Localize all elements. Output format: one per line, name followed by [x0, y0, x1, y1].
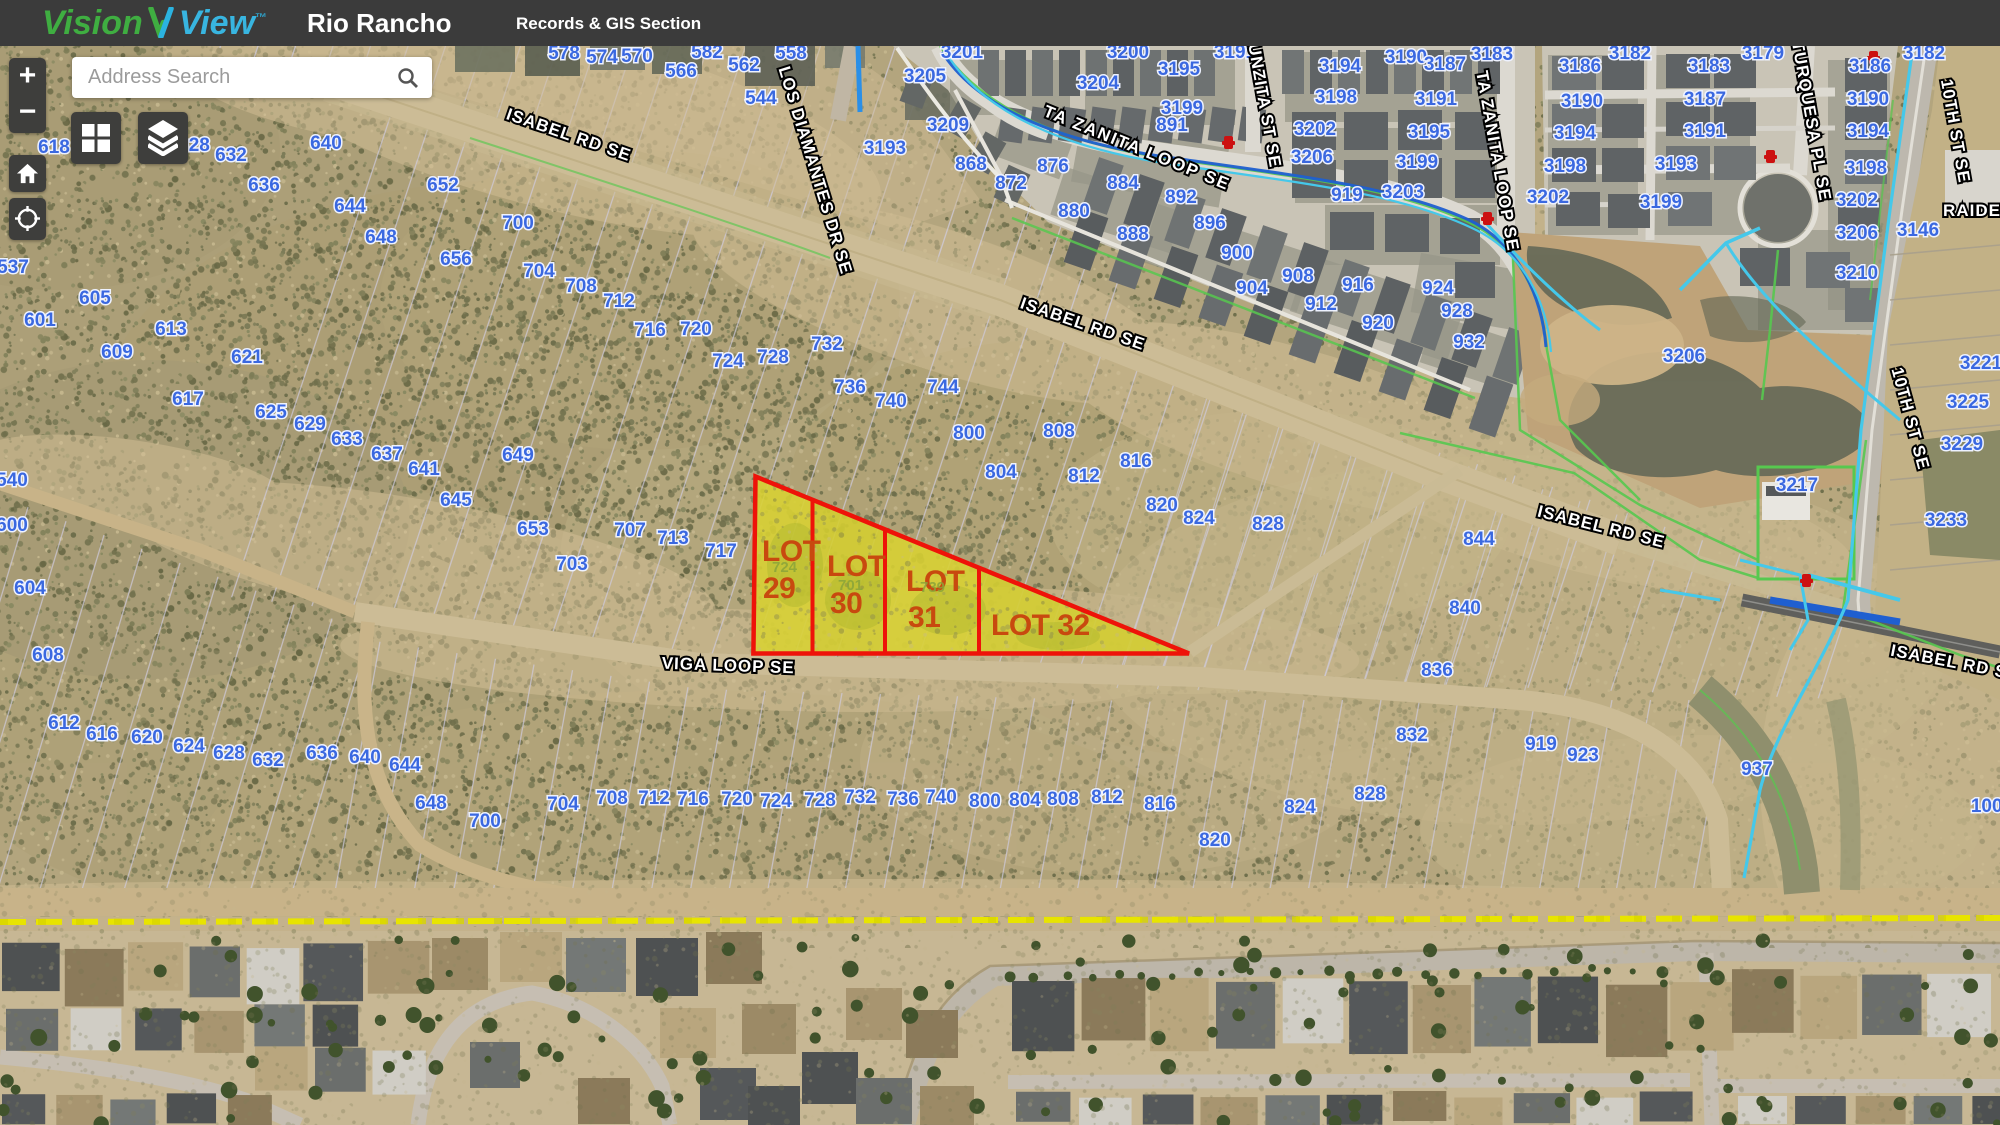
svg-text:707: 707: [614, 520, 646, 541]
svg-text:716: 716: [634, 320, 666, 341]
svg-text:3190: 3190: [1561, 91, 1603, 112]
svg-text:872: 872: [995, 173, 1027, 194]
svg-text:712: 712: [603, 291, 635, 312]
svg-text:3187: 3187: [1424, 54, 1466, 75]
svg-text:3146: 3146: [1897, 220, 1939, 241]
svg-text:800: 800: [969, 791, 1001, 812]
svg-text:3195: 3195: [1158, 59, 1201, 80]
svg-text:637: 637: [371, 444, 403, 465]
svg-text:724: 724: [712, 351, 744, 372]
svg-text:624: 624: [173, 736, 205, 757]
svg-text:923: 923: [1567, 745, 1599, 766]
svg-text:625: 625: [255, 402, 287, 423]
svg-text:3193: 3193: [1655, 154, 1697, 175]
svg-text:1001: 1001: [1971, 796, 2000, 817]
svg-text:832: 832: [1396, 725, 1428, 746]
svg-text:840: 840: [1449, 598, 1481, 619]
svg-text:3187: 3187: [1684, 89, 1726, 110]
svg-text:652: 652: [427, 175, 459, 196]
svg-text:812: 812: [1091, 787, 1123, 808]
svg-text:3194: 3194: [1847, 121, 1890, 142]
svg-text:613: 613: [155, 319, 187, 340]
svg-text:740: 740: [875, 391, 907, 412]
svg-text:3229: 3229: [1941, 434, 1983, 455]
svg-text:932: 932: [1453, 332, 1485, 353]
svg-text:900: 900: [1221, 243, 1253, 264]
svg-text:828: 828: [1354, 784, 1386, 805]
svg-text:704: 704: [523, 261, 555, 282]
svg-text:608: 608: [32, 645, 64, 666]
svg-text:3209: 3209: [927, 115, 969, 136]
svg-text:937: 937: [1741, 759, 1773, 780]
svg-text:617: 617: [172, 389, 204, 410]
svg-text:739: 739: [920, 579, 945, 596]
svg-text:537: 537: [0, 257, 29, 278]
svg-text:3198: 3198: [1845, 158, 1887, 179]
svg-text:713: 713: [657, 528, 689, 549]
svg-text:3202: 3202: [1527, 187, 1569, 208]
svg-text:824: 824: [1284, 797, 1316, 818]
svg-text:732: 732: [811, 334, 843, 355]
svg-text:800: 800: [953, 423, 985, 444]
svg-text:578: 578: [548, 43, 580, 64]
svg-text:3191: 3191: [1415, 89, 1458, 110]
svg-text:629: 629: [294, 414, 326, 435]
svg-text:3221: 3221: [1960, 353, 2000, 374]
svg-text:716: 716: [677, 789, 709, 810]
svg-text:3190: 3190: [1847, 89, 1889, 110]
svg-text:717: 717: [705, 541, 737, 562]
svg-text:3183: 3183: [1688, 56, 1730, 77]
svg-text:544: 544: [745, 88, 777, 109]
svg-text:3198: 3198: [1544, 156, 1586, 177]
svg-text:724: 724: [760, 791, 792, 812]
svg-text:3198: 3198: [1315, 87, 1357, 108]
svg-text:728: 728: [804, 790, 836, 811]
svg-text:653: 653: [517, 519, 549, 540]
svg-text:804: 804: [1009, 790, 1041, 811]
svg-text:892: 892: [1165, 187, 1197, 208]
svg-text:816: 816: [1144, 794, 1176, 815]
svg-text:884: 884: [1107, 173, 1139, 194]
svg-text:644: 644: [334, 196, 366, 217]
svg-text:562: 562: [728, 55, 760, 76]
svg-text:712: 712: [638, 788, 670, 809]
svg-text:LOT 32: LOT 32: [991, 609, 1090, 642]
svg-text:844: 844: [1463, 529, 1495, 550]
svg-text:3217: 3217: [1776, 475, 1818, 496]
svg-text:724: 724: [772, 559, 798, 576]
svg-text:3186: 3186: [1849, 56, 1891, 77]
svg-text:656: 656: [440, 249, 472, 270]
svg-text:700: 700: [502, 213, 534, 234]
svg-text:601: 601: [24, 310, 56, 331]
svg-text:820: 820: [1146, 495, 1178, 516]
svg-text:732: 732: [844, 787, 876, 808]
svg-text:736: 736: [834, 377, 866, 398]
svg-text:640: 640: [310, 133, 342, 154]
svg-text:621: 621: [231, 347, 263, 368]
svg-text:816: 816: [1120, 451, 1152, 472]
svg-text:632: 632: [252, 750, 284, 771]
svg-text:616: 616: [86, 724, 118, 745]
svg-text:728: 728: [757, 347, 789, 368]
svg-text:3193: 3193: [864, 138, 906, 159]
svg-text:740: 740: [925, 787, 957, 808]
svg-text:904: 904: [1236, 278, 1268, 299]
svg-text:868: 868: [955, 154, 987, 175]
svg-text:640: 640: [349, 747, 381, 768]
svg-text:612: 612: [48, 713, 80, 734]
svg-text:3191: 3191: [1684, 121, 1727, 142]
svg-text:828: 828: [1252, 514, 1284, 535]
svg-text:604: 604: [14, 578, 46, 599]
svg-text:540: 540: [0, 470, 28, 491]
svg-text:3182: 3182: [1609, 43, 1651, 64]
svg-text:920: 920: [1362, 313, 1394, 334]
svg-text:644: 644: [389, 755, 421, 776]
svg-text:708: 708: [565, 276, 597, 297]
svg-text:804: 804: [985, 462, 1017, 483]
svg-text:812: 812: [1068, 466, 1100, 487]
svg-text:633: 633: [331, 429, 363, 450]
svg-text:609: 609: [101, 342, 133, 363]
svg-text:3199: 3199: [1640, 192, 1682, 213]
svg-text:808: 808: [1047, 789, 1079, 810]
svg-text:3233: 3233: [1925, 510, 1967, 531]
svg-text:3206: 3206: [1663, 346, 1705, 367]
svg-text:3206: 3206: [1291, 147, 1333, 168]
svg-text:908: 908: [1282, 266, 1314, 287]
svg-text:620: 620: [131, 727, 163, 748]
svg-text:924: 924: [1422, 278, 1454, 299]
svg-text:928: 928: [1441, 301, 1473, 322]
svg-text:808: 808: [1043, 421, 1075, 442]
svg-text:876: 876: [1037, 156, 1069, 177]
svg-text:3179: 3179: [1742, 43, 1784, 64]
svg-text:3202: 3202: [1836, 190, 1878, 211]
svg-text:3210: 3210: [1836, 263, 1878, 284]
svg-text:3183: 3183: [1471, 44, 1513, 65]
svg-text:912: 912: [1305, 294, 1337, 315]
svg-text:636: 636: [248, 175, 280, 196]
svg-text:720: 720: [721, 789, 753, 810]
svg-text:649: 649: [502, 445, 534, 466]
svg-text:919: 919: [1331, 185, 1363, 206]
svg-text:880: 880: [1058, 201, 1090, 222]
svg-text:744: 744: [927, 377, 959, 398]
svg-text:3194: 3194: [1554, 123, 1597, 144]
svg-text:648: 648: [365, 227, 397, 248]
svg-text:3199: 3199: [1396, 152, 1438, 173]
svg-text:574: 574: [586, 47, 618, 68]
svg-text:3190: 3190: [1385, 47, 1427, 68]
svg-text:3203: 3203: [1382, 182, 1424, 203]
svg-text:645: 645: [440, 490, 472, 511]
svg-text:704: 704: [547, 794, 579, 815]
svg-text:648: 648: [415, 793, 447, 814]
svg-text:836: 836: [1421, 660, 1453, 681]
svg-text:896: 896: [1194, 213, 1226, 234]
svg-text:3225: 3225: [1947, 392, 1990, 413]
svg-text:RAIDE: RAIDE: [1943, 201, 2000, 220]
svg-text:3182: 3182: [1903, 43, 1945, 64]
svg-text:566: 566: [665, 61, 697, 82]
svg-text:636: 636: [306, 743, 338, 764]
svg-text:558: 558: [775, 43, 807, 64]
svg-text:3204: 3204: [1077, 73, 1120, 94]
svg-text:3205: 3205: [904, 66, 947, 87]
svg-text:703: 703: [556, 554, 588, 575]
svg-text:824: 824: [1183, 508, 1215, 529]
svg-text:919: 919: [1525, 734, 1557, 755]
svg-text:3206: 3206: [1836, 223, 1878, 244]
svg-text:605: 605: [79, 288, 111, 309]
svg-text:700: 700: [469, 811, 501, 832]
svg-text:3194: 3194: [1319, 56, 1362, 77]
svg-text:3202: 3202: [1294, 119, 1336, 140]
svg-text:720: 720: [680, 319, 712, 340]
svg-text:891: 891: [1156, 115, 1188, 136]
svg-text:29: 29: [763, 572, 795, 605]
svg-text:632: 632: [215, 145, 247, 166]
svg-text:600: 600: [0, 515, 28, 536]
svg-text:641: 641: [408, 459, 440, 480]
svg-text:628: 628: [213, 743, 245, 764]
svg-text:31: 31: [908, 601, 940, 634]
svg-text:3186: 3186: [1559, 56, 1601, 77]
svg-text:570: 570: [621, 46, 653, 67]
svg-text:708: 708: [596, 788, 628, 809]
svg-text:3195: 3195: [1408, 122, 1451, 143]
svg-text:820: 820: [1199, 830, 1231, 851]
svg-text:916: 916: [1342, 275, 1374, 296]
svg-text:736: 736: [887, 789, 919, 810]
svg-text:701: 701: [838, 577, 863, 594]
svg-text:888: 888: [1117, 224, 1149, 245]
